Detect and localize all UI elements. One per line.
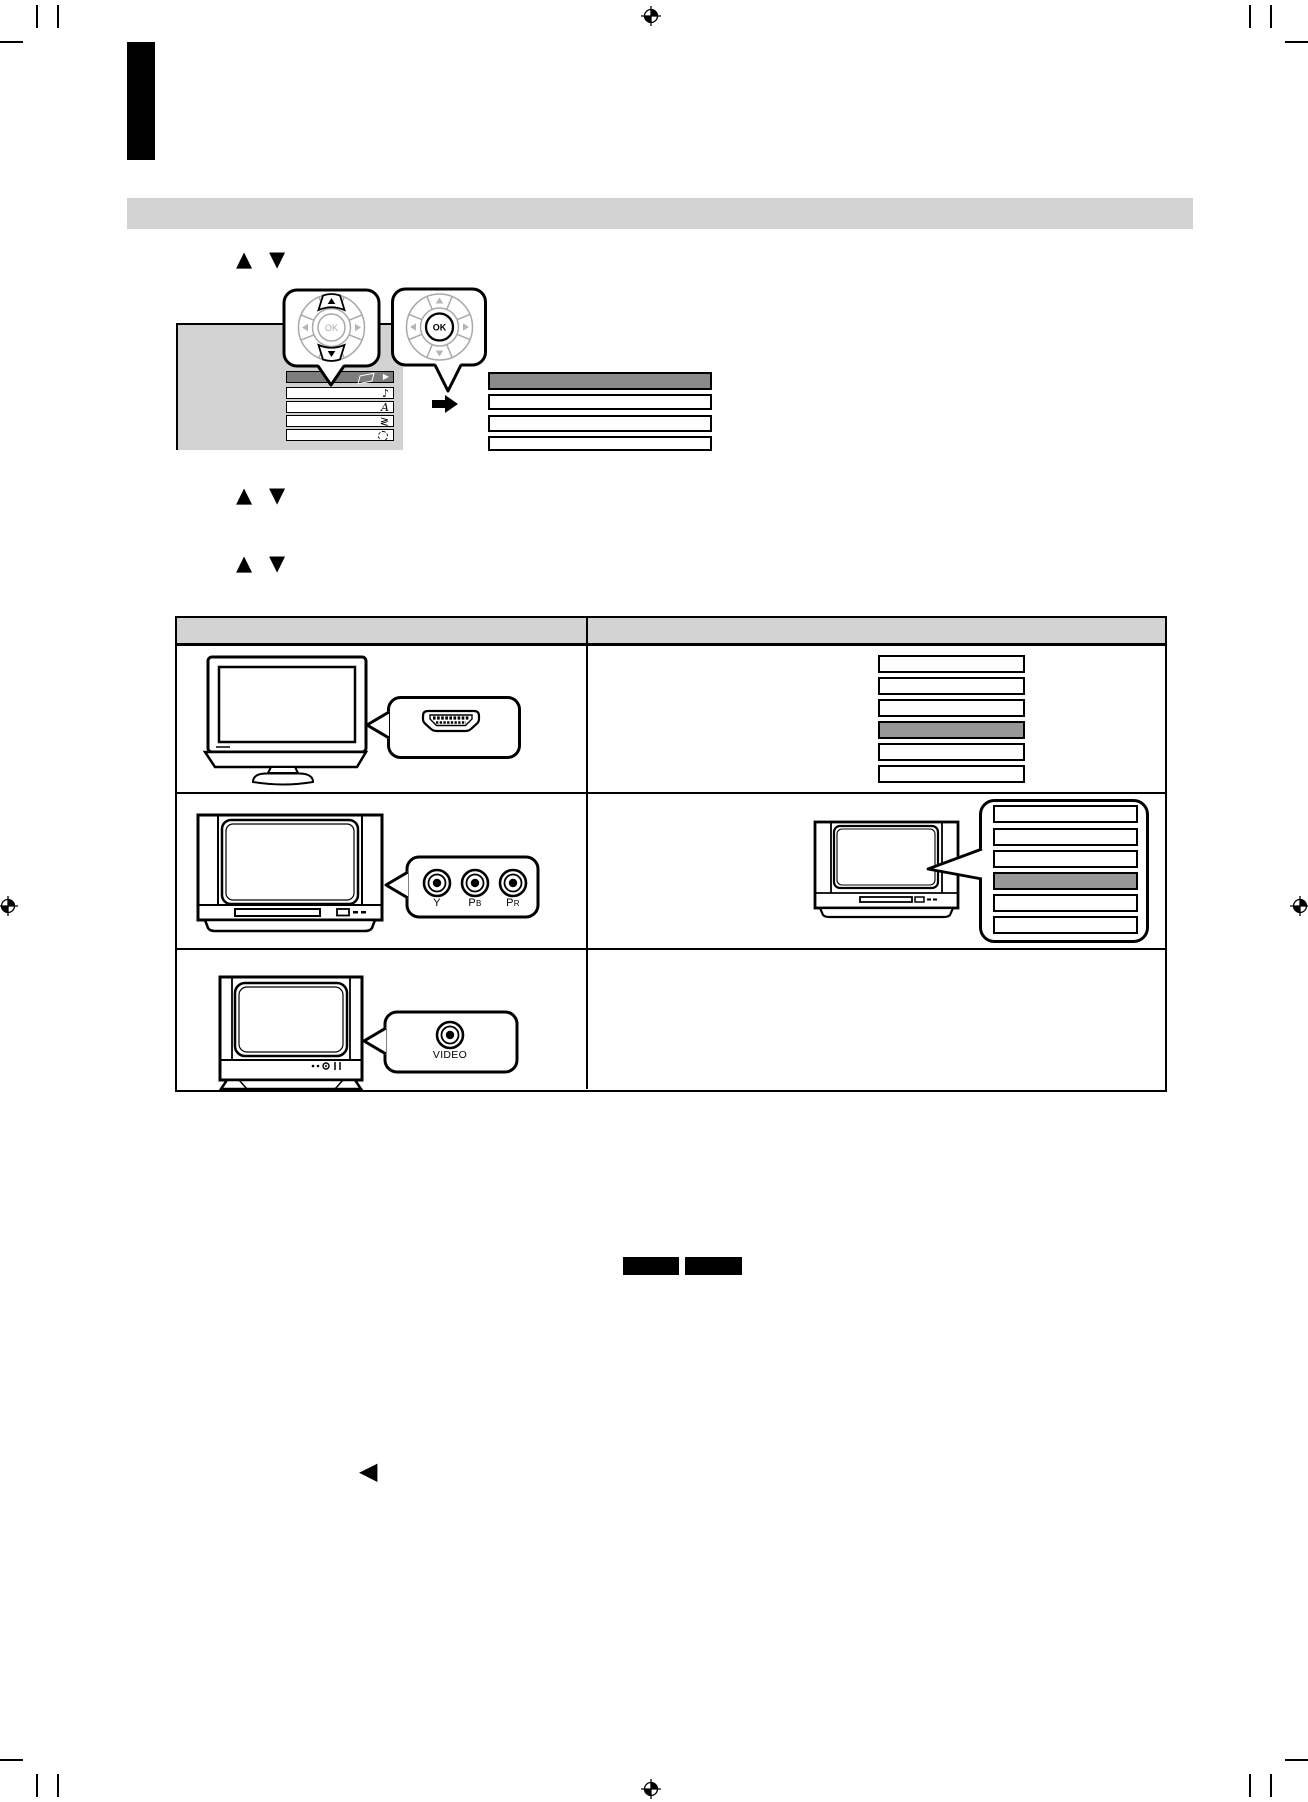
rca-jack-video-icon (437, 1022, 463, 1048)
crop-mark (57, 1774, 59, 1797)
menu-item-misc (286, 429, 394, 441)
hdmi-port-callout (360, 694, 525, 764)
crop-mark (1249, 1774, 1251, 1797)
up-triangle-icon: ▲ (236, 249, 252, 270)
jack-label-video: VIDEO (420, 1049, 480, 1061)
rca-jack-y-icon (424, 870, 450, 896)
osd-list-row (993, 805, 1138, 823)
crop-mark (0, 41, 23, 43)
down-triangle-icon: ▼ (269, 485, 285, 506)
chapter-tab (127, 42, 155, 160)
hdmi-port-icon (423, 711, 479, 731)
music-note-icon: ♪ (382, 387, 389, 400)
jack-label-pb: PB (463, 897, 487, 909)
right-triangle-icon: ▶ (383, 371, 389, 383)
osd-list-row (993, 894, 1138, 912)
section-heading-bar (127, 198, 1193, 229)
osd-list-row (878, 655, 1025, 673)
crop-mark (36, 1774, 38, 1797)
osd-list-row-selected (878, 721, 1025, 739)
ok-button-label: OK (325, 323, 338, 333)
remote-dial-callout-updown: OK (281, 287, 381, 389)
registration-mark (641, 1779, 661, 1799)
up-triangle-icon: ▲ (236, 485, 252, 506)
osd-list-row (878, 699, 1025, 717)
crop-mark (1285, 1759, 1308, 1761)
up-triangle-icon: ▲ (236, 553, 252, 574)
widescreen-crt-tv (195, 812, 390, 937)
crop-mark (1249, 5, 1251, 28)
osd-list-row (878, 765, 1025, 783)
registration-mark (641, 6, 661, 26)
ok-button-label: OK (433, 323, 447, 333)
video-jack-callout (358, 1008, 528, 1078)
component-jacks-callout (378, 852, 548, 922)
manual-page: ▲ ▼ ▶ ♪ A ≷ (0, 0, 1308, 1802)
crop-mark (36, 5, 38, 28)
osd-list-row (993, 850, 1138, 868)
submenu-row (488, 394, 712, 410)
crop-mark (1270, 5, 1272, 28)
osd-list-row (993, 828, 1138, 846)
registration-mark (0, 896, 18, 916)
crop-mark (0, 1759, 23, 1761)
menu-item-language: A (286, 401, 394, 413)
osd-list-row (878, 677, 1025, 695)
flat-panel-tv (205, 650, 375, 790)
letter-a-icon: A (381, 401, 389, 414)
redacted-label-box (623, 1257, 679, 1275)
jack-label-pr: PR (501, 897, 525, 909)
crop-mark (1285, 41, 1308, 43)
zigzag-icon: ≷ (380, 415, 389, 428)
submenu-row-selected (488, 372, 712, 390)
crop-mark (1270, 1774, 1272, 1797)
right-arrow-icon-head (445, 395, 458, 413)
crop-mark (57, 5, 59, 28)
osd-list-row (993, 916, 1138, 934)
submenu-row (488, 415, 712, 432)
osd-list-row (878, 743, 1025, 761)
osd-list-row-selected (993, 872, 1138, 890)
menu-item-zigzag: ≷ (286, 415, 394, 427)
jack-label-y: Y (425, 897, 449, 909)
redacted-label-box (685, 1257, 742, 1275)
dashed-circle-icon (378, 431, 388, 441)
table-header-row (177, 618, 1165, 646)
rca-jack-pr-icon (500, 870, 526, 896)
registration-mark (1290, 896, 1308, 916)
submenu-row (488, 436, 712, 451)
rca-jack-pb-icon (462, 870, 488, 896)
down-triangle-icon: ▼ (269, 249, 285, 270)
remote-dial-callout-ok: OK (390, 285, 490, 395)
table-column-divider (586, 618, 589, 1089)
crt-tv (215, 972, 375, 1097)
table-row-divider (177, 792, 1165, 795)
left-triangle-icon: ◀ (359, 1459, 377, 1483)
down-triangle-icon: ▼ (269, 553, 285, 574)
